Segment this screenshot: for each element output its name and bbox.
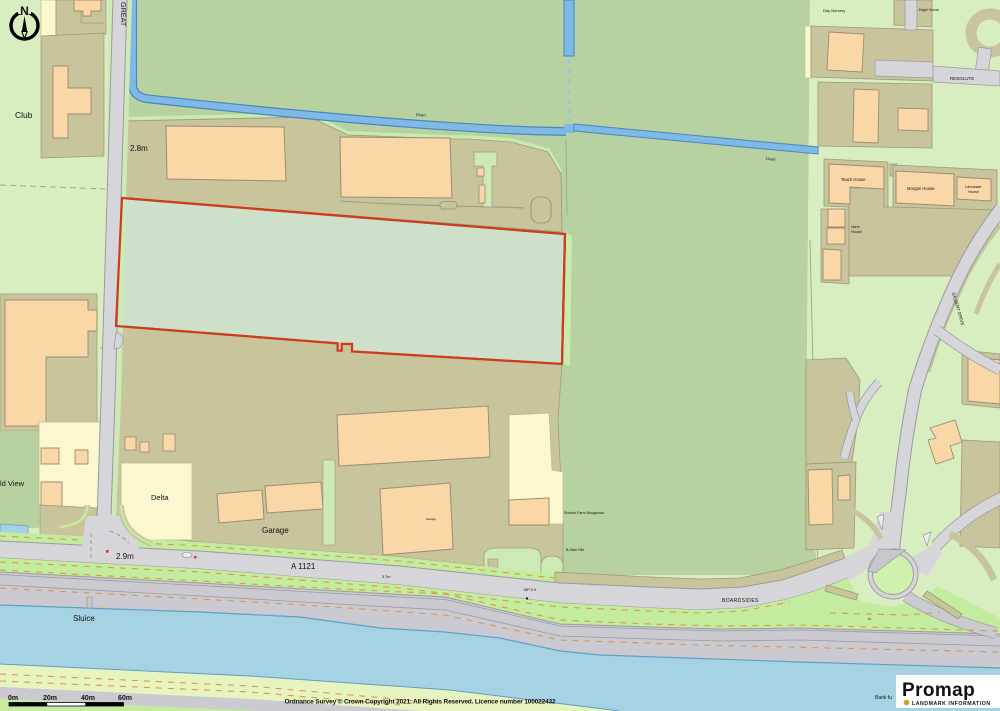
svg-text:Sluice: Sluice: [73, 614, 95, 623]
svg-text:Teach House: Teach House: [841, 177, 866, 182]
svg-text:Eagle House: Eagle House: [919, 8, 939, 12]
svg-text:A 1121: A 1121: [291, 562, 316, 571]
svg-text:3.7m: 3.7m: [382, 575, 390, 579]
svg-text:LANDMARK INFORMATION: LANDMARK INFORMATION: [912, 701, 991, 707]
svg-text:Promap: Promap: [902, 680, 975, 701]
svg-text:N: N: [20, 4, 29, 18]
svg-text:Drain: Drain: [416, 112, 426, 118]
svg-text:Garage: Garage: [262, 526, 289, 535]
svg-text:2.8m: 2.8m: [130, 144, 148, 153]
svg-text:Club: Club: [15, 110, 33, 120]
svg-text:20m: 20m: [43, 695, 57, 702]
svg-text:Ordnance Survey © Crown Copyri: Ordnance Survey © Crown Copyright 2021. …: [284, 698, 556, 706]
svg-text:House: House: [851, 230, 862, 234]
svg-text:ld View: ld View: [0, 479, 25, 488]
svg-text:0m: 0m: [8, 695, 18, 702]
svg-text:Garage: Garage: [426, 517, 436, 521]
svg-text:Delta: Delta: [151, 493, 169, 502]
svg-text:House: House: [968, 190, 979, 194]
svg-text:2.9m: 2.9m: [116, 552, 134, 561]
svg-text:Morgan House: Morgan House: [907, 186, 935, 191]
svg-text:Vane: Vane: [851, 225, 860, 229]
svg-text:RESOLUTE: RESOLUTE: [950, 76, 974, 81]
svg-text:MP 5.5: MP 5.5: [524, 588, 536, 592]
svg-text:40m: 40m: [81, 695, 95, 702]
svg-text:Day Nursery: Day Nursery: [823, 8, 845, 13]
svg-text:GREAT: GREAT: [119, 2, 128, 27]
svg-text:Shelton Farm Bungalows: Shelton Farm Bungalows: [564, 511, 604, 515]
svg-text:60m: 60m: [118, 695, 132, 702]
svg-text:B-Gain Site: B-Gain Site: [566, 548, 584, 552]
svg-text:Lancaster: Lancaster: [965, 185, 982, 189]
svg-text:sl.: sl.: [868, 617, 872, 621]
svg-text:Bank fu: Bank fu: [875, 695, 892, 701]
svg-text:BOARDSIDES: BOARDSIDES: [722, 598, 759, 604]
svg-text:Drain: Drain: [766, 156, 776, 162]
